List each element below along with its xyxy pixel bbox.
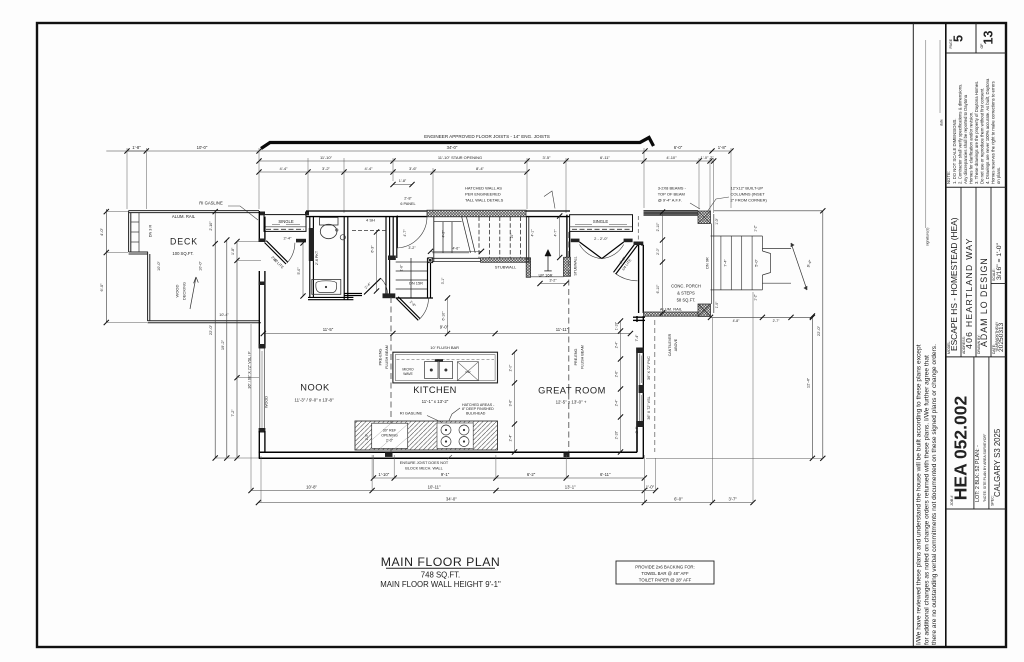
svg-text:HATCHED WALL AS: HATCHED WALL AS <box>465 186 502 191</box>
svg-text:HATCHED AREAS -: HATCHED AREAS - <box>462 403 495 407</box>
svg-text:20250313: 20250313 <box>998 322 1005 352</box>
svg-text:CONC. PORCH: CONC. PORCH <box>671 284 701 289</box>
svg-text:ADAM LO DESIGN: ADAM LO DESIGN <box>979 257 989 347</box>
svg-text:6'-11": 6'-11" <box>600 472 611 477</box>
svg-text:OPENING: OPENING <box>381 434 398 438</box>
svg-text:10'-0": 10'-0" <box>197 145 208 150</box>
svg-text:TALL WALL DETAILS: TALL WALL DETAILS <box>465 198 504 203</box>
svg-text:3'-1": 3'-1" <box>441 277 445 284</box>
svg-text:1'-8": 1'-8" <box>718 145 727 150</box>
svg-text:COLUMNS (INSET: COLUMNS (INSET <box>731 192 766 197</box>
svg-text:5'-0": 5'-0" <box>297 267 301 275</box>
svg-text:13: 13 <box>982 31 996 45</box>
svg-text:ESCAPE HS - HOMESTEAD (HEA): ESCAPE HS - HOMESTEAD (HEA) <box>949 217 959 351</box>
svg-text:3-2X8 BEAMS -: 3-2X8 BEAMS - <box>658 186 687 191</box>
svg-text:11'-3" / 9'-0" x 13'-8": 11'-3" / 9'-0" x 13'-8" <box>294 398 334 403</box>
svg-text:WAVE: WAVE <box>403 372 413 376</box>
svg-text:PROVIDE 2x6 BACKING FOR:: PROVIDE 2x6 BACKING FOR: <box>635 564 694 569</box>
svg-text:406 HEARTLAND WAY: 406 HEARTLAND WAY <box>964 237 974 349</box>
svg-text:4'-6": 4'-6" <box>453 247 461 251</box>
svg-text:SINGLE: SINGLE <box>593 219 609 224</box>
svg-text:there are no outstanding verba: there are no outstanding verbal commitme… <box>931 344 938 645</box>
svg-text:748 SQ.FT.: 748 SQ.FT. <box>421 571 460 580</box>
svg-text:6'-3": 6'-3" <box>371 245 375 253</box>
svg-text:1'-2": 1'-2" <box>754 293 758 300</box>
svg-text:1'-0": 1'-0" <box>715 217 719 224</box>
svg-text:for additional changes as note: for additional changes as noted on chang… <box>923 355 930 645</box>
svg-text:1'-10": 1'-10" <box>378 472 389 477</box>
svg-text:2'-6": 2'-6" <box>615 370 619 377</box>
svg-text:10' FLUSH BAR: 10' FLUSH BAR <box>430 345 459 350</box>
svg-text:2'-4": 2'-4" <box>509 434 513 442</box>
svg-text:1'-0": 1'-0" <box>701 155 710 160</box>
svg-text:2'-3": 2'-3" <box>386 439 394 443</box>
svg-text:100 SQ.FT.: 100 SQ.FT. <box>172 251 193 256</box>
svg-text:NOOK: NOOK <box>300 383 330 393</box>
svg-text:10": 10" <box>510 233 514 239</box>
svg-text:ENSURE JOIST DOES NOT: ENSURE JOIST DOES NOT <box>400 461 449 465</box>
svg-text:TOP OF BEAM: TOP OF BEAM <box>658 192 685 197</box>
svg-text:13'-1": 13'-1" <box>565 485 576 490</box>
svg-text:MAIN FLOOR PLAN: MAIN FLOOR PLAN <box>381 555 501 569</box>
svg-text:11'-10" STAIR OPENING: 11'-10" STAIR OPENING <box>438 155 482 160</box>
svg-text:DECK: DECK <box>170 237 198 247</box>
svg-text:1. DO NOT SCALE DIMENSIONS.: 1. DO NOT SCALE DIMENSIONS. <box>952 118 957 184</box>
svg-text:2'-0": 2'-0" <box>509 364 513 372</box>
svg-text:7'-4": 7'-4" <box>635 334 639 342</box>
svg-text:2'-8": 2'-8" <box>409 300 417 308</box>
svg-text:1'-8": 1'-8" <box>399 179 407 183</box>
svg-text:3/16" = 1'-0": 3/16" = 1'-0" <box>996 242 1003 280</box>
svg-text:CALGARY S3 2025: CALGARY S3 2025 <box>993 428 1002 497</box>
svg-text:8'-4": 8'-4" <box>476 166 485 171</box>
svg-text:6'-2": 6'-2" <box>527 472 536 477</box>
svg-text:3'-2": 3'-2" <box>549 279 557 283</box>
svg-text:5'-0": 5'-0" <box>755 259 759 267</box>
svg-text:3'-5": 3'-5" <box>543 155 552 160</box>
svg-text:58 SQ.FT.: 58 SQ.FT. <box>677 298 696 303</box>
svg-text:@ 9'-4" A.F.F.: @ 9'-4" A.F.F. <box>658 198 682 203</box>
svg-text:2'-4": 2'-4" <box>635 426 639 434</box>
svg-text:3'-6": 3'-6" <box>409 166 418 171</box>
svg-text:NOTE:: NOTE: <box>946 171 951 184</box>
svg-text:4'-8": 4'-8" <box>733 319 741 323</box>
svg-text:3'-6": 3'-6" <box>509 399 513 407</box>
svg-text:DN 15R: DN 15R <box>409 281 423 286</box>
svg-text:8" DEEP FINISHED: 8" DEEP FINISHED <box>462 407 494 411</box>
svg-text:12"x12" BUILT-UP: 12"x12" BUILT-UP <box>731 186 764 191</box>
svg-text:22'-0": 22'-0" <box>816 325 821 336</box>
svg-text:36" X 72" PVC: 36" X 72" PVC <box>647 356 651 380</box>
svg-text:2'-6 PKT: 2'-6 PKT <box>315 250 319 265</box>
svg-text:ALUM. RAIL: ALUM. RAIL <box>172 214 196 219</box>
svg-text:I/We have reviewed these plans: I/We have reviewed these plans and under… <box>916 344 923 645</box>
svg-text:1'-8": 1'-8" <box>231 247 235 255</box>
svg-text:DECKING: DECKING <box>182 282 187 300</box>
svg-text:10'-0": 10'-0" <box>199 261 203 271</box>
svg-text:9'-1": 9'-1" <box>441 472 450 477</box>
svg-text:ALUM. RAIL: ALUM. RAIL <box>660 307 683 312</box>
svg-text:CANTILEVER: CANTILEVER <box>668 333 672 356</box>
svg-text:6'-10": 6'-10" <box>656 284 660 293</box>
svg-text:1'-10": 1'-10" <box>615 321 619 330</box>
svg-text:2'-0": 2'-0" <box>656 247 660 255</box>
svg-text:FLUSH BEAM: FLUSH BEAM <box>581 345 585 369</box>
svg-text:2" FROM CORNER): 2" FROM CORNER) <box>731 198 768 203</box>
svg-text:1/2 LITE: 1/2 LITE <box>272 257 285 270</box>
svg-text:GREAT ROOM: GREAT ROOM <box>538 386 606 396</box>
svg-text:4. Drawings are never 100% acc: 4. Drawings are never 100% accurate. As … <box>985 78 990 184</box>
svg-text:4'-7": 4'-7" <box>403 229 407 237</box>
svg-text:1'-8": 1'-8" <box>132 145 141 150</box>
svg-text:2 - 2'-0": 2 - 2'-0" <box>594 236 608 241</box>
svg-text:PER ENGINEERED: PER ENGINEERED <box>465 192 501 197</box>
svg-text:11'-10": 11'-10" <box>320 155 333 160</box>
svg-text:UP 16R: UP 16R <box>539 273 553 278</box>
svg-text:34'-0": 34'-0" <box>447 145 458 150</box>
svg-text:DN 9R: DN 9R <box>706 257 710 269</box>
svg-text:SINGLE: SINGLE <box>278 219 294 224</box>
svg-text:9'-4": 9'-4" <box>806 259 812 268</box>
svg-text:6'-0": 6'-0" <box>674 145 683 150</box>
svg-text:2'-5": 2'-5" <box>365 434 369 440</box>
svg-text:HEA 052.002: HEA 052.002 <box>951 396 971 501</box>
svg-text:2'-10": 2'-10" <box>615 430 619 439</box>
svg-text:1'-8": 1'-8" <box>400 264 404 271</box>
svg-text:10'-0": 10'-0" <box>157 261 161 271</box>
svg-text:2'-8": 2'-8" <box>404 197 412 201</box>
svg-text:2'-10": 2'-10" <box>656 222 660 231</box>
svg-text:TOILET PAPER @ 28" AFF: TOILET PAPER @ 28" AFF <box>639 577 692 582</box>
svg-text:& STEPS: & STEPS <box>677 291 695 296</box>
svg-text:Do not use or reproduce them w: Do not use or reproduce them without fir… <box>980 88 985 184</box>
svg-text:signature(s): signature(s) <box>925 228 929 246</box>
svg-text:36" X 72" VSL: 36" X 72" VSL <box>647 396 651 419</box>
svg-text:2'-7": 2'-7" <box>773 319 781 323</box>
svg-text:4'-3": 4'-3" <box>442 230 446 238</box>
svg-text:12'-5" x 13'-0" +: 12'-5" x 13'-0" + <box>556 400 587 405</box>
svg-text:6'-11": 6'-11" <box>600 155 610 160</box>
svg-text:4'-7": 4'-7" <box>554 229 558 237</box>
svg-text:ENGINEER APPROVED FLOOR JOISTS: ENGINEER APPROVED FLOOR JOISTS - 14" ENG… <box>424 134 550 139</box>
svg-text:MICRO: MICRO <box>402 368 414 372</box>
svg-text:7'-2": 7'-2" <box>231 409 235 417</box>
svg-text:LOT: 2 BLK: 52 PLAN: -: LOT: 2 BLK: 52 PLAN: - <box>975 445 981 502</box>
svg-text:1'-0": 1'-0" <box>715 301 719 308</box>
svg-text:11'-5": 11'-5" <box>323 327 334 332</box>
svg-text:TOWEL BAR @ 48" AFF: TOWEL BAR @ 48" AFF <box>641 571 689 576</box>
svg-text:Homes for clarification and/or: Homes for clarification and/or revision. <box>968 112 973 184</box>
svg-text:KITCHEN: KITCHEN <box>413 385 457 395</box>
svg-text:Homes reserves the right to ma: Homes reserves the right to make correct… <box>991 81 996 184</box>
svg-text:11'-11": 11'-11" <box>556 327 569 332</box>
svg-text:2'-10": 2'-10" <box>209 221 213 231</box>
svg-text:3'-2": 3'-2" <box>408 246 416 250</box>
svg-text:STUBWALL: STUBWALL <box>574 256 578 275</box>
svg-text:10'-11": 10'-11" <box>428 485 441 490</box>
svg-text:2. Contractor shall verify spe: 2. Contractor shall verify specification… <box>957 84 962 184</box>
svg-text:10'-4": 10'-4" <box>219 313 229 317</box>
svg-text:on plans.: on plans. <box>996 167 1001 184</box>
svg-text:2'-4": 2'-4" <box>284 236 293 241</box>
svg-text:4'-4": 4'-4" <box>365 166 374 171</box>
svg-text:DW: DW <box>466 370 471 374</box>
svg-text:2'-4": 2'-4" <box>615 399 619 406</box>
svg-text:PRE-ENG: PRE-ENG <box>379 348 383 365</box>
svg-text:12'-4": 12'-4" <box>805 377 810 388</box>
svg-text:PRE-ENG: PRE-ENG <box>574 348 578 365</box>
svg-text:STUBWALL: STUBWALL <box>495 264 517 269</box>
svg-text:BLOCK MECH. WALL: BLOCK MECH. WALL <box>405 466 442 470</box>
svg-text:6'-0": 6'-0" <box>674 497 683 502</box>
svg-text:MAIN FLOOR WALL HEIGHT 9'-1": MAIN FLOOR WALL HEIGHT 9'-1" <box>380 580 501 589</box>
svg-text:6 PANEL: 6 PANEL <box>400 202 415 206</box>
svg-text:ABOVE: ABOVE <box>674 338 678 351</box>
svg-text:date: date <box>939 119 943 126</box>
svg-text:4 SH: 4 SH <box>366 218 375 223</box>
svg-text:11'-1" x 13'-2": 11'-1" x 13'-2" <box>422 399 449 404</box>
svg-text:Any discrepancies shall be rep: Any discrepancies shall be reported to D… <box>963 94 968 184</box>
svg-text:22'-0": 22'-0" <box>208 324 213 335</box>
svg-text:1'-0": 1'-0" <box>646 485 655 490</box>
svg-text:RI GASLINE: RI GASLINE <box>199 201 223 206</box>
svg-text:34'-0": 34'-0" <box>446 497 457 502</box>
svg-text:5: 5 <box>952 35 966 42</box>
svg-text:BULKHEAD: BULKHEAD <box>466 412 486 416</box>
svg-text:30" REF: 30" REF <box>383 429 397 433</box>
svg-text:2'-4": 2'-4" <box>615 341 619 348</box>
svg-text:19'-2": 19'-2" <box>220 339 225 350</box>
svg-text:3. These drawings are the prop: 3. These drawings are the property of Da… <box>974 81 979 184</box>
svg-text:7'-4": 7'-4" <box>724 259 728 267</box>
svg-text:1'-2": 1'-2" <box>754 224 758 231</box>
svg-text:3'-2": 3'-2" <box>322 166 331 171</box>
svg-text:DN 3 R: DN 3 R <box>149 225 153 238</box>
svg-text:4'-10": 4'-10" <box>666 155 677 160</box>
svg-text:"NOTE: SITE PLAN BY AREA SURVE: "NOTE: SITE PLAN BY AREA SURVEYOR" <box>983 433 987 502</box>
svg-text:6'-10": 6'-10" <box>442 311 446 321</box>
svg-text:6'-0": 6'-0" <box>99 283 104 292</box>
svg-text:RI GASLINE: RI GASLINE <box>400 411 423 416</box>
svg-text:10'-8": 10'-8" <box>306 485 317 490</box>
svg-text:4'-4": 4'-4" <box>280 166 289 171</box>
svg-text:4'-0": 4'-0" <box>99 227 104 236</box>
svg-text:3'-7": 3'-7" <box>728 497 737 502</box>
svg-text:WOOD: WOOD <box>265 396 269 408</box>
svg-text:FLUSH BEAM: FLUSH BEAM <box>385 345 389 369</box>
svg-text:4'-1": 4'-1" <box>531 229 535 237</box>
svg-text:WOOD: WOOD <box>175 284 180 297</box>
